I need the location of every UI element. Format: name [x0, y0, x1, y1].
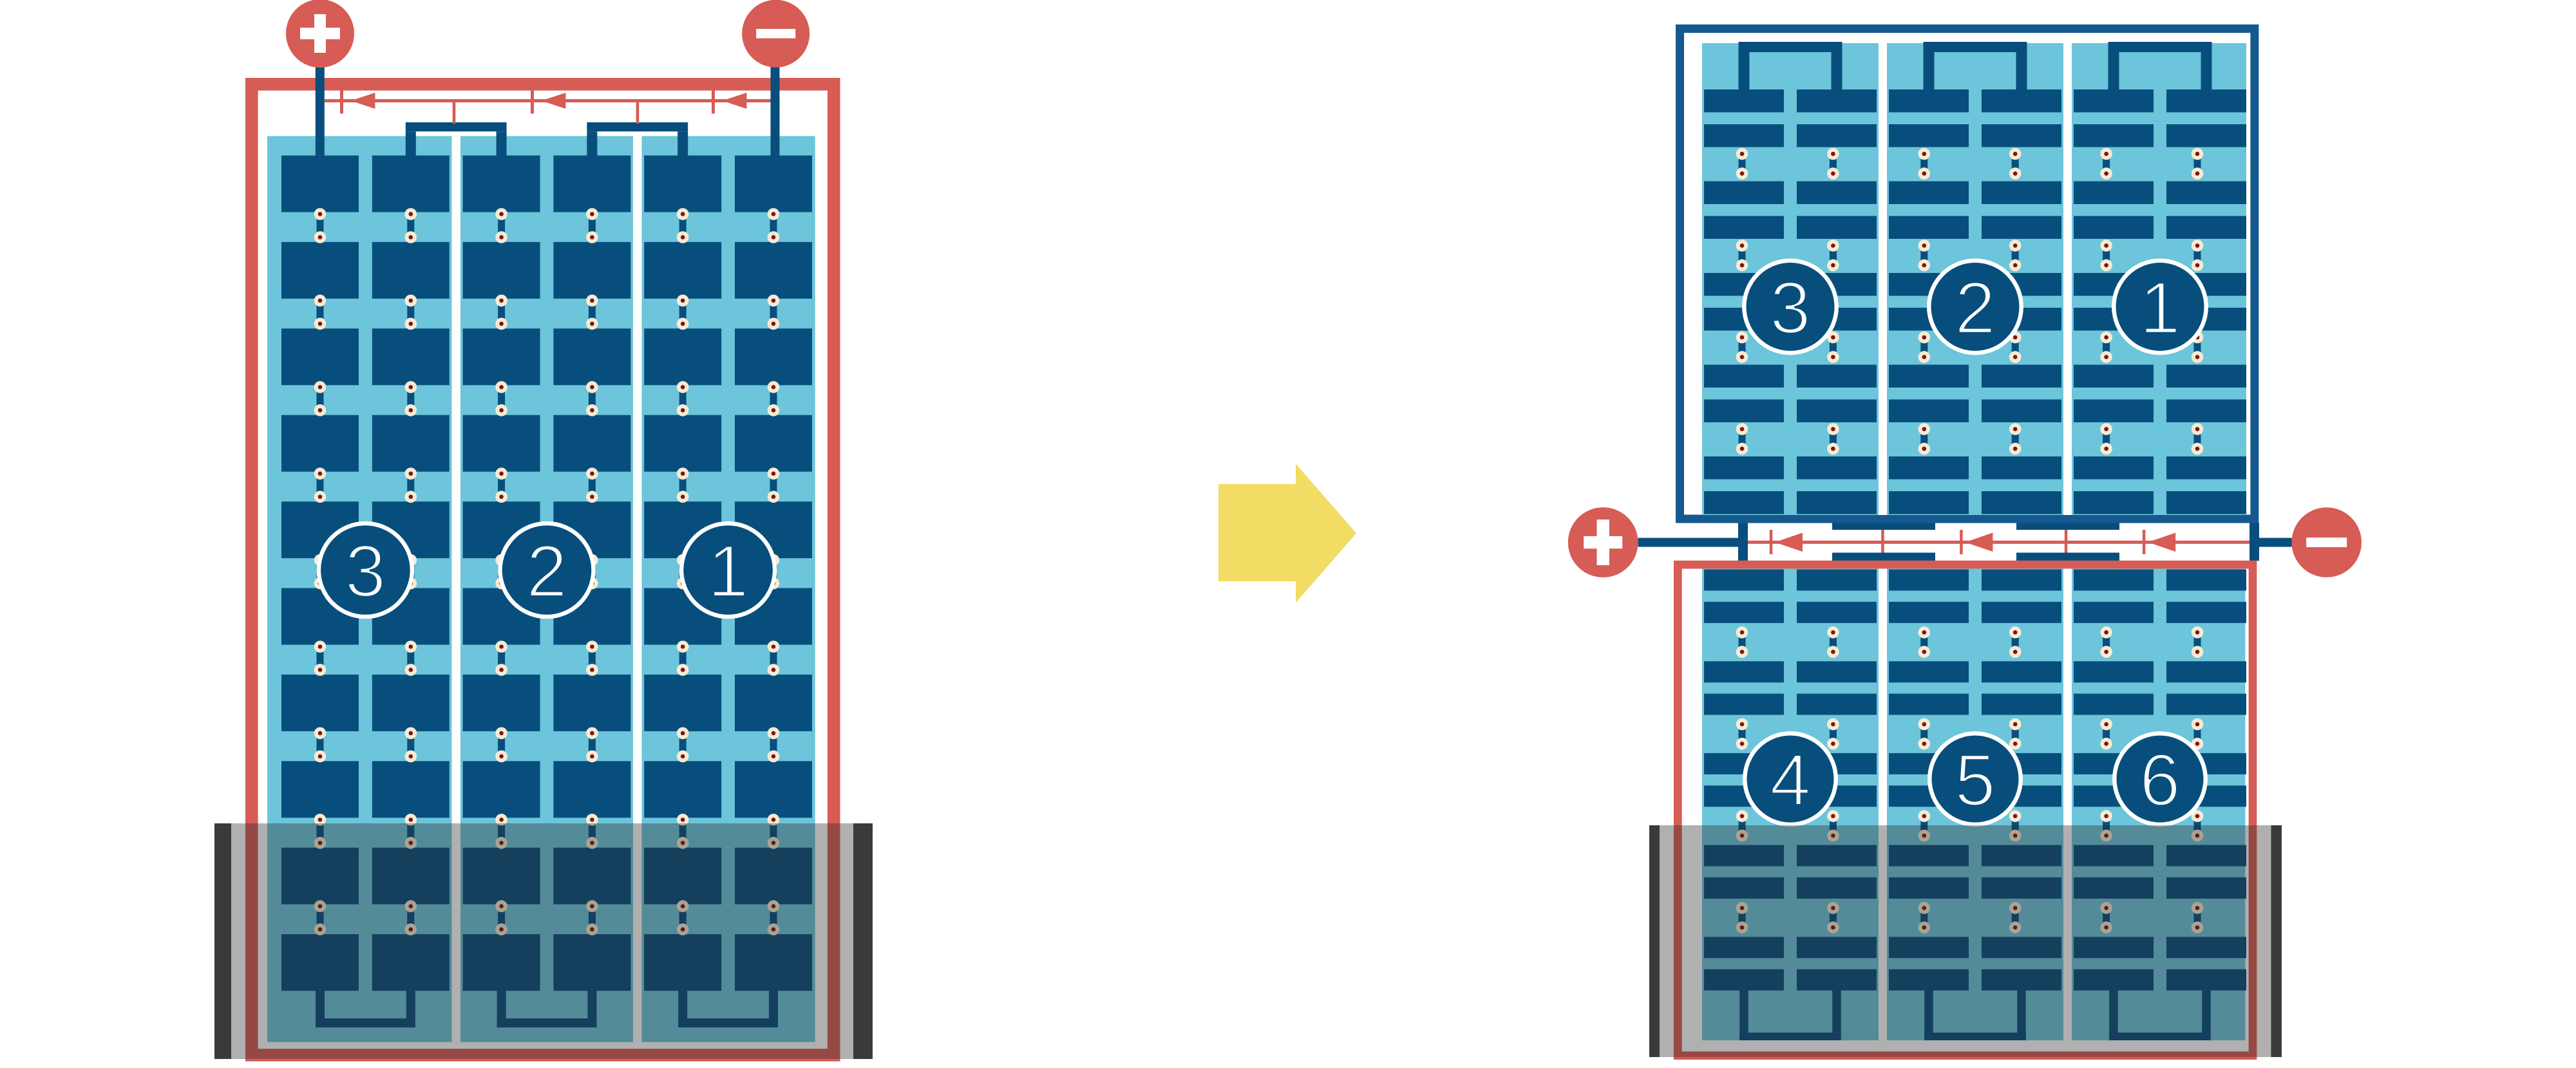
svg-text:2: 2 [526, 531, 567, 613]
svg-text:5: 5 [1955, 740, 1995, 821]
svg-text:3: 3 [1770, 268, 1810, 350]
svg-text:3: 3 [345, 531, 386, 613]
svg-text:4: 4 [1770, 740, 1810, 821]
svg-text:6: 6 [2139, 740, 2180, 821]
svg-text:2: 2 [1955, 268, 1995, 350]
svg-text:1: 1 [708, 531, 748, 613]
svg-text:1: 1 [2139, 268, 2180, 350]
